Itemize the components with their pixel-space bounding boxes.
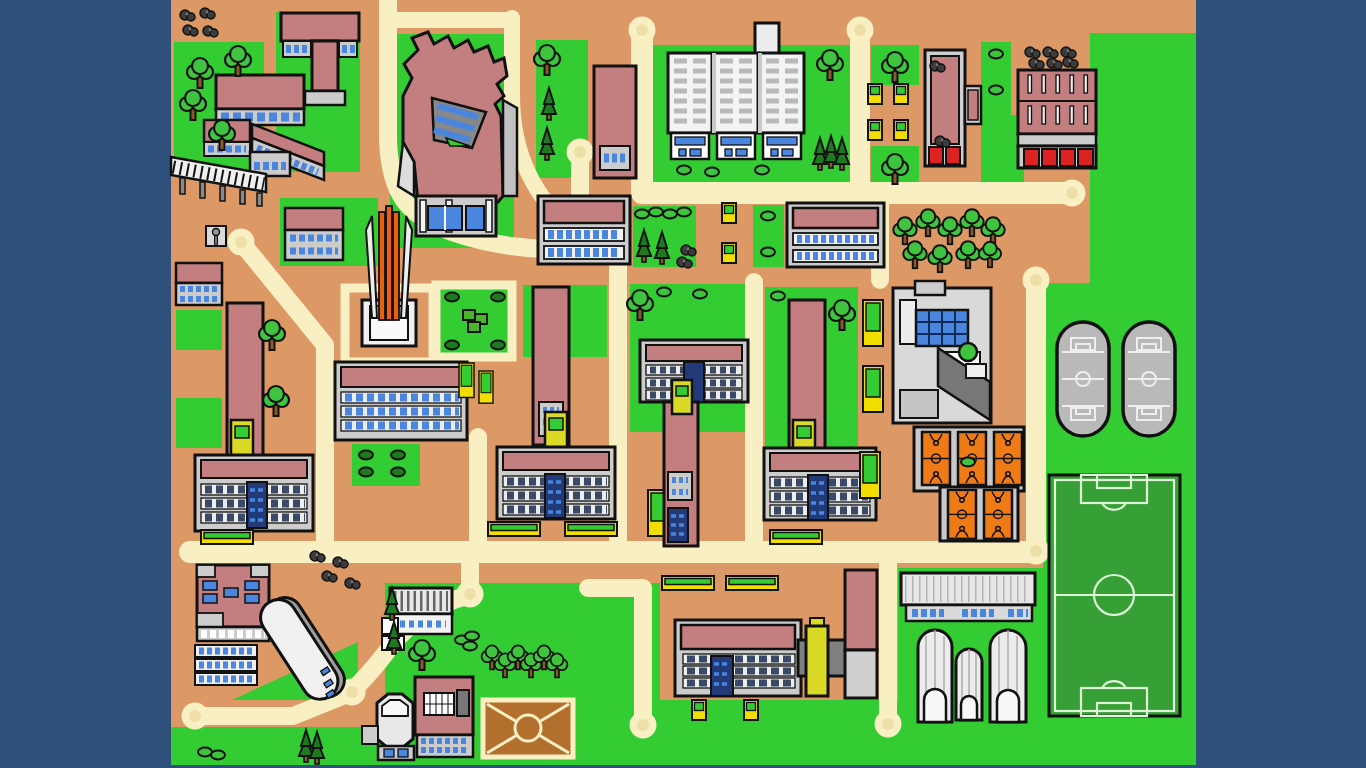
parking-marker — [662, 576, 714, 590]
solar-rows — [195, 645, 257, 685]
basketball-court — [922, 432, 950, 485]
well — [206, 226, 226, 246]
parking-marker — [863, 366, 883, 412]
dome-tree — [959, 343, 977, 361]
building-southwest-complex — [195, 565, 269, 685]
building-school-south — [415, 677, 473, 757]
running-track-2 — [1123, 322, 1175, 436]
dirt-field — [483, 700, 573, 757]
parking-marker — [744, 700, 758, 720]
parking-marker — [692, 700, 706, 720]
t-building-roof — [281, 13, 359, 41]
yellow-tower — [806, 626, 828, 696]
basketball-court — [994, 432, 1022, 485]
running-track-1 — [1057, 322, 1109, 436]
lawn-strip-ne1 — [981, 42, 1011, 182]
parking-marker — [863, 300, 883, 346]
campus-map-canvas — [0, 0, 1366, 768]
tower-c — [672, 380, 692, 414]
parking-marker — [459, 363, 474, 398]
building-mid-small — [285, 208, 343, 260]
lawn-west2 — [176, 398, 222, 448]
slab-south — [845, 570, 877, 650]
building-modern-library — [893, 281, 991, 423]
parking-marker — [860, 452, 880, 498]
parking-marker — [565, 522, 617, 536]
building-ne-dorm — [1018, 70, 1096, 168]
parking-marker — [726, 576, 778, 590]
tower-entrances — [671, 133, 801, 159]
soccer-field — [1049, 475, 1180, 716]
parking-marker — [770, 530, 822, 544]
monument — [362, 206, 416, 346]
building-dorm-row-east — [787, 203, 884, 267]
parking-marker — [201, 530, 253, 544]
parking-marker — [488, 522, 540, 536]
campus-map — [0, 0, 1366, 768]
parking-marker — [479, 371, 493, 403]
lawn-west1 — [176, 310, 222, 350]
basketball-court — [948, 490, 976, 539]
building-vertical-north — [594, 66, 636, 178]
building-dorm-row-west — [538, 196, 630, 264]
basketball-court — [984, 490, 1012, 539]
